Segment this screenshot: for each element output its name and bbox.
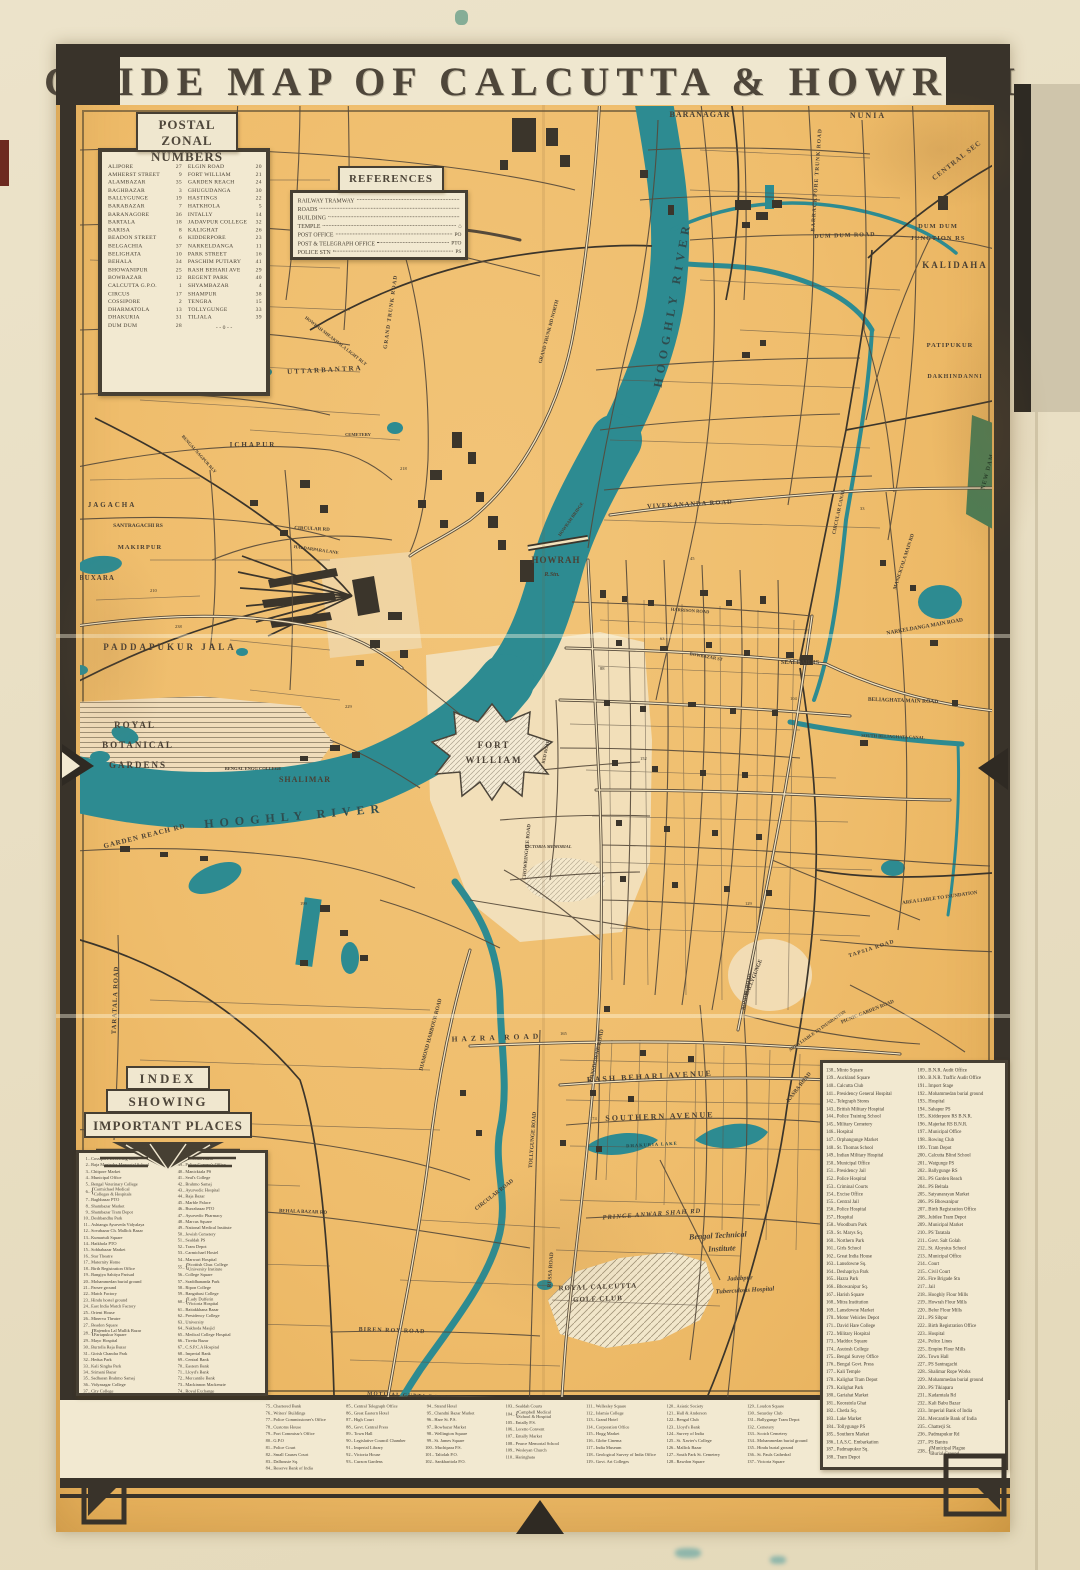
index-entry: 167Harish Square [826, 1291, 913, 1299]
index-panel-left: 1Cossipore Receiving Shed2Raja Manindra … [76, 1150, 268, 1396]
index-entry: 92Victoria House [345, 1451, 417, 1458]
references-box: RAILWAY TRAMWAY ROADS BUILDING TEMPLE⌂ P… [290, 190, 468, 260]
index-entry: 231Kadamtala Rd [918, 1392, 1005, 1400]
postal-entry: TILJALA39 [188, 313, 262, 321]
postal-entry: BARTALA18 [108, 218, 182, 226]
map-label: GARDENS [109, 760, 167, 770]
index-entry: 74Royal Exchange [176, 1388, 266, 1394]
index-entry: 174Asutosh College [826, 1345, 913, 1353]
map-label: SOUTHERN AVENUE [605, 1110, 714, 1123]
map-label: PRINCE ANWAR SHAH RD [602, 1208, 701, 1222]
map-label: NUNIA [850, 111, 886, 120]
index-entry: 236Padmapukur Rd [918, 1431, 1005, 1439]
index-entry: 150Municipal Office [826, 1160, 913, 1168]
index-entry: 114Corporation Office [586, 1424, 658, 1431]
map-marker-number: 210 [150, 588, 158, 593]
index-entry: 6Carmichael Medical Colleges & Hospitals [82, 1187, 172, 1196]
index-entry: 126Mallick Bazar [667, 1445, 739, 1452]
index-entry: 219Howrah Flour Mills [918, 1299, 1005, 1307]
index-entry: 184Tollygunge PS [826, 1423, 913, 1431]
map-label: TAPSIA ROAD [848, 939, 896, 960]
index-column: 129Loudon Square130Saturday Club131Bally… [747, 1403, 819, 1472]
index-entry: 148St. Thomas School [826, 1144, 913, 1152]
index-entry: 233Imperial Bank of India [918, 1407, 1005, 1415]
index-entry: 80G.P.O [264, 1438, 336, 1445]
postal-entry: FORT WILLIAM21 [188, 170, 262, 178]
map-label: UTTARBANTRA [287, 364, 363, 376]
index-entry: 119Govt. Art Colleges [586, 1458, 658, 1465]
postal-entry: TENGRA15 [188, 298, 262, 306]
index-entry: 223Hospital [918, 1330, 1005, 1338]
map-label: GRAND TRUNK ROAD [383, 274, 399, 349]
index-entry: 117India Museum [586, 1445, 658, 1452]
index-entry: 142Telegraph Stores [826, 1098, 913, 1106]
index-panel-right: 138Minto Square139Auckland Square140Calc… [820, 1060, 1008, 1470]
map-label: BEHALA BAZAR RD [279, 1209, 328, 1216]
index-entry: 229Mohammedan burial ground [918, 1376, 1005, 1384]
index-entry: 85Central Telegraph Office [345, 1403, 417, 1410]
index-entry: 106Loretto Convent [506, 1426, 578, 1433]
map-label: R.Stn. [543, 572, 560, 578]
postal-entry: BHOWANIPUR25 [108, 266, 182, 274]
index-entry: 124Survey of India [667, 1431, 739, 1438]
fold-line [542, 105, 545, 1395]
map-label: SANTRAGACHI RS [113, 523, 163, 529]
postal-entry: BAGHBAZAR3 [108, 186, 182, 194]
map-label: CIRCULAR ROAD [474, 1178, 515, 1212]
map-label: HOWRAH [531, 555, 580, 565]
index-entry: 143British Military Hospital [826, 1105, 913, 1113]
index-entry: 196Majerhat RS B.N.R. [918, 1121, 1005, 1129]
postal-entry: SHYAMBAZAR4 [188, 282, 262, 290]
index-entry: 156Police Hospital [826, 1206, 913, 1214]
index-heading-3: IMPORTANT PLACES [84, 1112, 252, 1138]
index-entry: 28Rajendra Lal Mullik Bazar Fariapukur S… [82, 1328, 172, 1337]
postal-entry: RASH BEHARI AVE29 [188, 266, 262, 274]
index-entry: 192Mohammedan burial ground [918, 1090, 1005, 1098]
map-label: GARDEN REACH RD [103, 822, 187, 850]
index-entry: 220Belur Flour Mills [918, 1307, 1005, 1315]
index-entry: 224Police Lines [918, 1338, 1005, 1346]
index-column: 85Central Telegraph Office86Great Easter… [345, 1403, 417, 1472]
index-entry: 139Auckland Square [826, 1074, 913, 1082]
index-entry: 140Calcutta Club [826, 1082, 913, 1090]
index-entry: 207Birth Registration Office [918, 1206, 1005, 1214]
map-marker-number: 199 [300, 901, 308, 906]
postal-entry: AMHERST STREET9 [108, 170, 182, 178]
index-entry: 212St. Aloysius School [918, 1245, 1005, 1253]
map-marker-number: 33 [860, 506, 865, 511]
index-entry: 104Campbell Medical School & Hospital [506, 1410, 578, 1419]
index-entry: 146Hospital [826, 1129, 913, 1137]
index-entry: 193Hospital [918, 1098, 1005, 1106]
index-entry: 208Jubilee Tram Depot [918, 1214, 1005, 1222]
index-entry: 157Hospital [826, 1214, 913, 1222]
map-marker-number: 152 [640, 756, 647, 761]
reference-entry: RAILWAY TRAMWAY [298, 196, 462, 205]
map-marker-number: 88 [600, 666, 605, 671]
map-label: Jadabpur [726, 1274, 753, 1282]
postal-entry: PASCHIM PUTIARY41 [188, 258, 262, 266]
index-entry: 194Sahapur PS [918, 1105, 1005, 1113]
postal-entry: HASTINGS22 [188, 194, 262, 202]
index-entry: 125St. Xavier's College [667, 1438, 739, 1445]
index-entry: 141Presidency General Hospital [826, 1090, 913, 1098]
index-entry: 165Hazra Park [826, 1276, 913, 1284]
index-entry: 87High Court [345, 1417, 417, 1424]
postal-entry: BARISA8 [108, 226, 182, 234]
index-entry: 185Southern Market [826, 1431, 913, 1439]
index-entry: 101Taltolah P.O. [425, 1451, 497, 1458]
map-label: AREA LIABLE TO INUNDATION [902, 891, 978, 907]
map-label: KALIDAHA [922, 260, 988, 270]
index-entry: 197Municipal Office [918, 1129, 1005, 1137]
postal-zones-heading: POSTAL ZONAL NUMBERS [136, 112, 238, 152]
index-entry: 180Gariahat Market [826, 1392, 913, 1400]
index-column: 94Strand Hotel95Chandni Bazar Market96Ha… [425, 1403, 497, 1472]
index-column: 189B.N.R. Audit Office190B.N.R. Traffic … [918, 1067, 1005, 1468]
index-entry: 218Hooghly Flour Mills [918, 1291, 1005, 1299]
map-label: VIVEKANANDA ROAD [647, 499, 733, 510]
index-entry: 98Wellington Square [425, 1431, 497, 1438]
index-entry: 226Town Hall [918, 1353, 1005, 1361]
index-entry: 108Pearce Memorial School [506, 1440, 578, 1447]
index-entry: 195Kidderpore RS B.N.R. [918, 1113, 1005, 1121]
references-heading: REFERENCES [338, 166, 444, 192]
map-label: PADDAPUKUR JALA [103, 642, 237, 652]
index-entry: 213Municipal Office [918, 1252, 1005, 1260]
index-entry: 102Sankharitola P.O. [425, 1458, 497, 1465]
map-label: RUSSA ROAD [547, 1252, 555, 1288]
postal-entry: REGENT PARK40 [188, 274, 262, 282]
postal-entry: BEADON STREET6 [108, 234, 182, 242]
index-entry: 214Court [918, 1260, 1005, 1268]
index-entry: 84Reserve Bank of India [264, 1465, 336, 1472]
index-entry: 83Dalhousie Sq. [264, 1458, 336, 1465]
index-entry: 221PS Sibpur [918, 1314, 1005, 1322]
postal-entry: COSSIPORE2 [108, 298, 182, 306]
reference-entry: BUILDING [298, 213, 462, 222]
postal-entry: CIRCUS17 [108, 290, 182, 298]
index-entry: 89Town Hall [345, 1431, 417, 1438]
index-column: 1Cossipore Receiving Shed2Raja Manindra … [82, 1156, 172, 1394]
index-entry: 88Govt. Central Press [345, 1424, 417, 1431]
map-label: HOWRAH SHEAKHALA LIGHT RLY [304, 315, 368, 367]
index-entry: 159St. Marys Sq. [826, 1229, 913, 1237]
index-entry: 86Great Eastern Hotel [345, 1410, 417, 1417]
index-column: 111Wellesley Square112Islamia College113… [586, 1403, 658, 1472]
index-entry: 138Minto Square [826, 1067, 913, 1075]
postal-entry: BELIGHATA10 [108, 250, 182, 258]
index-entry: 133Scotch Cemetery [747, 1431, 819, 1438]
map-label: MAKIRPUR [118, 544, 162, 551]
postal-heading-text: POSTAL ZONAL NUMBERS [144, 117, 230, 165]
postal-footer: --0-- [188, 324, 262, 331]
index-entry: 198Rowing Club [918, 1136, 1005, 1144]
index-entry: 155Central Jail [826, 1198, 913, 1206]
map-label: VICTORIA MEMORIAL [524, 844, 571, 849]
index-entry: 199Tram Depot [918, 1144, 1005, 1152]
scanned-map-page: BARANAGARNUNIACENTRAL SECDUM DUMJUNCTION… [0, 0, 1080, 1570]
postal-entry: GARDEN REACH24 [188, 178, 262, 186]
map-label: Bengal Technical [688, 1229, 748, 1241]
index-entry: 230PS Tikiapara [918, 1384, 1005, 1392]
index-entry: 105Entally P.S. [506, 1419, 578, 1426]
index-column: 75Chartered Bank76Writers' Buildings77Po… [264, 1403, 336, 1472]
map-marker-number: 218 [400, 466, 408, 471]
index-entry: 131Ballygunge Tram Depot [747, 1417, 819, 1424]
index-entry: 166Bhowanipur Sq. [826, 1283, 913, 1291]
index-entry: 116Globe Cinema [586, 1438, 658, 1445]
postal-entry: DHARMATOLA13 [108, 306, 182, 314]
map-label: BUXARA [79, 574, 115, 582]
map-label: ROYAL [114, 720, 156, 730]
index-entry: 217Jail [918, 1283, 1005, 1291]
index-entry: 60Lady Dufferin Victoria Hospital [176, 1297, 266, 1306]
index-column: 38Mechhua Bazar39Police Commr's Office40… [176, 1156, 266, 1394]
map-label: BOTANICAL [102, 740, 174, 750]
index-entry: 147Orphangunge Market [826, 1136, 913, 1144]
index-entry: 169Lansdowne Market [826, 1307, 913, 1315]
map-label: PICNIC GARDEN ROAD [841, 999, 896, 1025]
reference-entry: POLICE STNPS [298, 248, 462, 257]
index-entry: 81Police Court [264, 1445, 336, 1452]
index-entry: 152Police Hospital [826, 1175, 913, 1183]
index-entry: 173Maddox Square [826, 1338, 913, 1346]
index-entry: 189B.N.R. Audit Office [918, 1067, 1005, 1075]
index-entry: 186I.A.S.C. Embarkation [826, 1438, 913, 1446]
index-entry: 215Civil Court [918, 1268, 1005, 1276]
map-label: JUNCTION RS [911, 235, 966, 242]
map-label: DUM DUM [918, 223, 958, 230]
index-entry: 182Chetla Sq. [826, 1407, 913, 1415]
index-entry: 234Mercantile Bank of India [918, 1415, 1005, 1423]
index-entry: 113Grand Hotel [586, 1417, 658, 1424]
index-entry: 187Padmapukur Sq. [826, 1446, 913, 1454]
map-label: SHALIMAR [279, 775, 331, 784]
postal-entry: DUM DUM28 [108, 321, 182, 329]
index-entry: 190B.N.R. Traffic Audit Office [918, 1074, 1005, 1082]
index-entry: 151Presidency Jail [826, 1167, 913, 1175]
index-entry: 93Curzon Gardens [345, 1458, 417, 1465]
index-entry: 181Keoratola Ghat [826, 1400, 913, 1408]
map-label: SEALDAH RS [781, 660, 820, 666]
index-entry: 90Legislative Council Chamber [345, 1438, 417, 1445]
postal-entry: BELGACHIA37 [108, 242, 182, 250]
index-entry: 179Kalighat Park [826, 1384, 913, 1392]
map-label: CIRCULAR RD [294, 526, 330, 533]
postal-entry: BOWBAZAR12 [108, 274, 182, 282]
index-heading-2: SHOWING [106, 1089, 230, 1113]
index-entry: 120Asiatic Society [667, 1403, 739, 1410]
reference-entry: POST OFFICEPO [298, 230, 462, 239]
postal-entry: TOLLYGUNGE33 [188, 306, 262, 314]
index-entry: 134Mohammedan burial ground [747, 1438, 819, 1445]
map-label: JAGACHA [88, 501, 137, 509]
index-column: 138Minto Square139Auckland Square140Calc… [826, 1067, 913, 1468]
index-entry: 191Import Stage [918, 1082, 1005, 1090]
map-label: Institute [707, 1243, 736, 1254]
reference-entry: TEMPLE⌂ [298, 222, 462, 231]
postal-entry: HATKHOLA5 [188, 202, 262, 210]
index-entry: 225Empire Flour Mills [918, 1345, 1005, 1353]
map-label: CEMETERY [345, 432, 372, 437]
index-entry: 210PS Taratala [918, 1229, 1005, 1237]
index-entry: 178Kalighat Tram Depot [826, 1376, 913, 1384]
index-entry: 203PS Garden Reach [918, 1175, 1005, 1183]
map-label: BARANAGAR [670, 110, 731, 119]
map-label: RASH BEHARI AVENUE [587, 1069, 713, 1085]
index-entry: 227PS Santragachi [918, 1361, 1005, 1369]
map-marker-number: 45 [690, 556, 695, 561]
index-entry: 170Motor Vehicles Depot [826, 1314, 913, 1322]
index-entry: 183Lake Market [826, 1415, 913, 1423]
index-entry: 158Woodburn Park [826, 1221, 913, 1229]
index-entry: 110Haringhata [506, 1454, 578, 1461]
index-entry: 115Hogg Market [586, 1431, 658, 1438]
map-label: HALDARPARA LANE [294, 544, 339, 555]
index-entry: 222Birth Registration Office [918, 1322, 1005, 1330]
index-entry: 130Saturday Club [747, 1410, 819, 1417]
index-entry: 77Police Commissioner's Office [264, 1417, 336, 1424]
index-entry: 109Wesleyan Church [506, 1447, 578, 1454]
index-entry: 121Hall & Anderson [667, 1410, 739, 1417]
index-entry: 168Mitra Institution [826, 1299, 913, 1307]
index-entry: 144Police Training School [826, 1113, 913, 1121]
map-label: BIREN ROY ROAD [359, 1327, 426, 1335]
index-entry: 82Small Causes Court [264, 1451, 336, 1458]
index-entry: 172Military Hospital [826, 1330, 913, 1338]
postal-entry: SHAMPUR38 [188, 290, 262, 298]
postal-col-left: ALIPORE27AMHERST STREET9ALAMBAZAR35BAGHB… [108, 163, 182, 384]
index-entry: 175Bengal Survey Office [826, 1353, 913, 1361]
index-entry: 235Chatterji St. [918, 1423, 1005, 1431]
index-entry: 95Chandni Bazar Market [425, 1410, 497, 1417]
postal-entry: KALIGHAT26 [188, 226, 262, 234]
map-label: HAZRA ROAD [451, 1031, 542, 1043]
postal-entry: ALAMBAZAR35 [108, 178, 182, 186]
map-label: FORT [478, 740, 511, 750]
references-heading-text: REFERENCES [349, 173, 433, 185]
reference-entry: POST & TELEGRAPH OFFICEPTO [298, 239, 462, 248]
postal-entry: KIDDERPORE23 [188, 234, 262, 242]
index-entry: 200Calcutta Blind School [918, 1152, 1005, 1160]
postal-entry: INTALLY14 [188, 210, 262, 218]
map-label: BENGAL NAGPUR RLY [181, 434, 218, 475]
postal-entry: CALCUTTA G.P.O.1 [108, 282, 182, 290]
index-entry: 160Northern Park [826, 1237, 913, 1245]
map-label: MANICKTALA MAIN RD [893, 533, 916, 590]
index-entry: 216Fire Brigade Stn [918, 1276, 1005, 1284]
index-entry: 112Islamia College [586, 1410, 658, 1417]
postal-entry: DHAKURIA31 [108, 313, 182, 321]
index-entry: 100Muchipara P.S. [425, 1445, 497, 1452]
index-entry: 149Indian Military Hospital [826, 1152, 913, 1160]
index-entry: 96Hare St. P.S. [425, 1417, 497, 1424]
index-entry: 127South Park St. Cemetery [667, 1451, 739, 1458]
map-marker-number: 238 [175, 624, 183, 629]
fold-line [56, 634, 1010, 638]
index-entry: 129Loudon Square [747, 1403, 819, 1410]
index-entry: 188Tram Depot [826, 1454, 913, 1462]
index-entry: 176Bengal Govt. Press [826, 1361, 913, 1369]
index-entry: 228Shalimar Rope Works [918, 1369, 1005, 1377]
index-entry: 171David Hare College [826, 1322, 913, 1330]
postal-col-right: ELGIN ROAD20FORT WILLIAM21GARDEN REACH24… [188, 163, 262, 384]
index-entry: 154Excise Office [826, 1191, 913, 1199]
index-entry: 136St. Pauls Cathedral [747, 1451, 819, 1458]
index-entry: 145Military Cemetery [826, 1121, 913, 1129]
map-marker-number: 129 [745, 901, 753, 906]
index-entry: 206PS Bhowanipur [918, 1198, 1005, 1206]
index-entry: 76Writers' Buildings [264, 1410, 336, 1417]
index-entry: 123Lloyd's Bank [667, 1424, 739, 1431]
map-label: BENGAL ENGG COLLEGE [225, 766, 282, 771]
index-entry: 153Criminal Courts [826, 1183, 913, 1191]
map-label: DAKHINDANNI [927, 374, 982, 380]
index-entry: 94Strand Hotel [425, 1403, 497, 1410]
index-entry: 78Customs House [264, 1424, 336, 1431]
index-entry: 202Ballygunge RS [918, 1167, 1005, 1175]
index-entry: 37City College [82, 1388, 172, 1394]
index-entry: 209Municipal Market [918, 1221, 1005, 1229]
index-entry: 99St. James Square [425, 1438, 497, 1445]
index-entry: 111Wellesley Square [586, 1403, 658, 1410]
index-entry: 135Hindu burial ground [747, 1445, 819, 1452]
postal-entry: BARABAZAR7 [108, 202, 182, 210]
map-label: DIAMOND HARBOUR ROAD [418, 998, 443, 1072]
index-entry: 201Watgunge PS [918, 1160, 1005, 1168]
postal-entry: BARANAGORE36 [108, 210, 182, 218]
index-entry: 204PS Beltala [918, 1183, 1005, 1191]
postal-entry: BALLYGUNGE19 [108, 194, 182, 202]
index-entry: 163Lansdowne Sq. [826, 1260, 913, 1268]
index-column: 103Sealdah Courts104Campbell Medical Sch… [506, 1403, 578, 1472]
map-label: ICHAPUR [230, 441, 277, 449]
index-entry: 205Satyanarayan Market [918, 1191, 1005, 1199]
index-entry: 132Cemetery [747, 1424, 819, 1431]
map-marker-number: 229 [345, 704, 353, 709]
index-entry: 137Victoria Square [747, 1458, 819, 1465]
references-list: RAILWAY TRAMWAY ROADS BUILDING TEMPLE⌂ P… [293, 193, 466, 260]
index-entry: 122Bengal Club [667, 1417, 739, 1424]
map-label: WILLIAM [465, 755, 522, 765]
index-entry: 55Scottish Chur. College University Inst… [176, 1262, 266, 1271]
index-entry: 75Chartered Bank [264, 1403, 336, 1410]
map-marker-number: 174 [590, 1116, 598, 1121]
index-entry: 177Kali Temple [826, 1369, 913, 1377]
map-label: BELIAGHATA MAIN ROAD [868, 697, 939, 705]
index-entry: 107Entally Market [506, 1433, 578, 1440]
index-entry: 161Girls School [826, 1245, 913, 1253]
fold-line [56, 1014, 1010, 1018]
map-marker-number: 165 [560, 1031, 568, 1036]
index-entry: 97Bowbazar Market [425, 1424, 497, 1431]
map-marker-number: 104 [790, 696, 798, 701]
index-entry: 211Govt. Salt Golah [918, 1237, 1005, 1245]
index-entry: 232Kali Babu Bazar [918, 1400, 1005, 1408]
postal-entry: NARKELDANGA11 [188, 242, 262, 250]
index-entry: 79Port Commissr's Office [264, 1431, 336, 1438]
index-heading-1: INDEX [126, 1066, 210, 1090]
index-entry: 164Deshapriya Park [826, 1268, 913, 1276]
postal-entry: GHUGUDANGA30 [188, 186, 262, 194]
index-entry: 238Municipal Plague Burial Ground [918, 1446, 1005, 1456]
index-entry: 128Rawdon Square [667, 1458, 739, 1465]
index-column: 120Asiatic Society121Hall & Anderson122B… [667, 1403, 739, 1472]
postal-zones-box: ALIPORE27AMHERST STREET9ALAMBAZAR35BAGHB… [98, 148, 270, 396]
map-label: PATIPUKUR [927, 342, 974, 349]
